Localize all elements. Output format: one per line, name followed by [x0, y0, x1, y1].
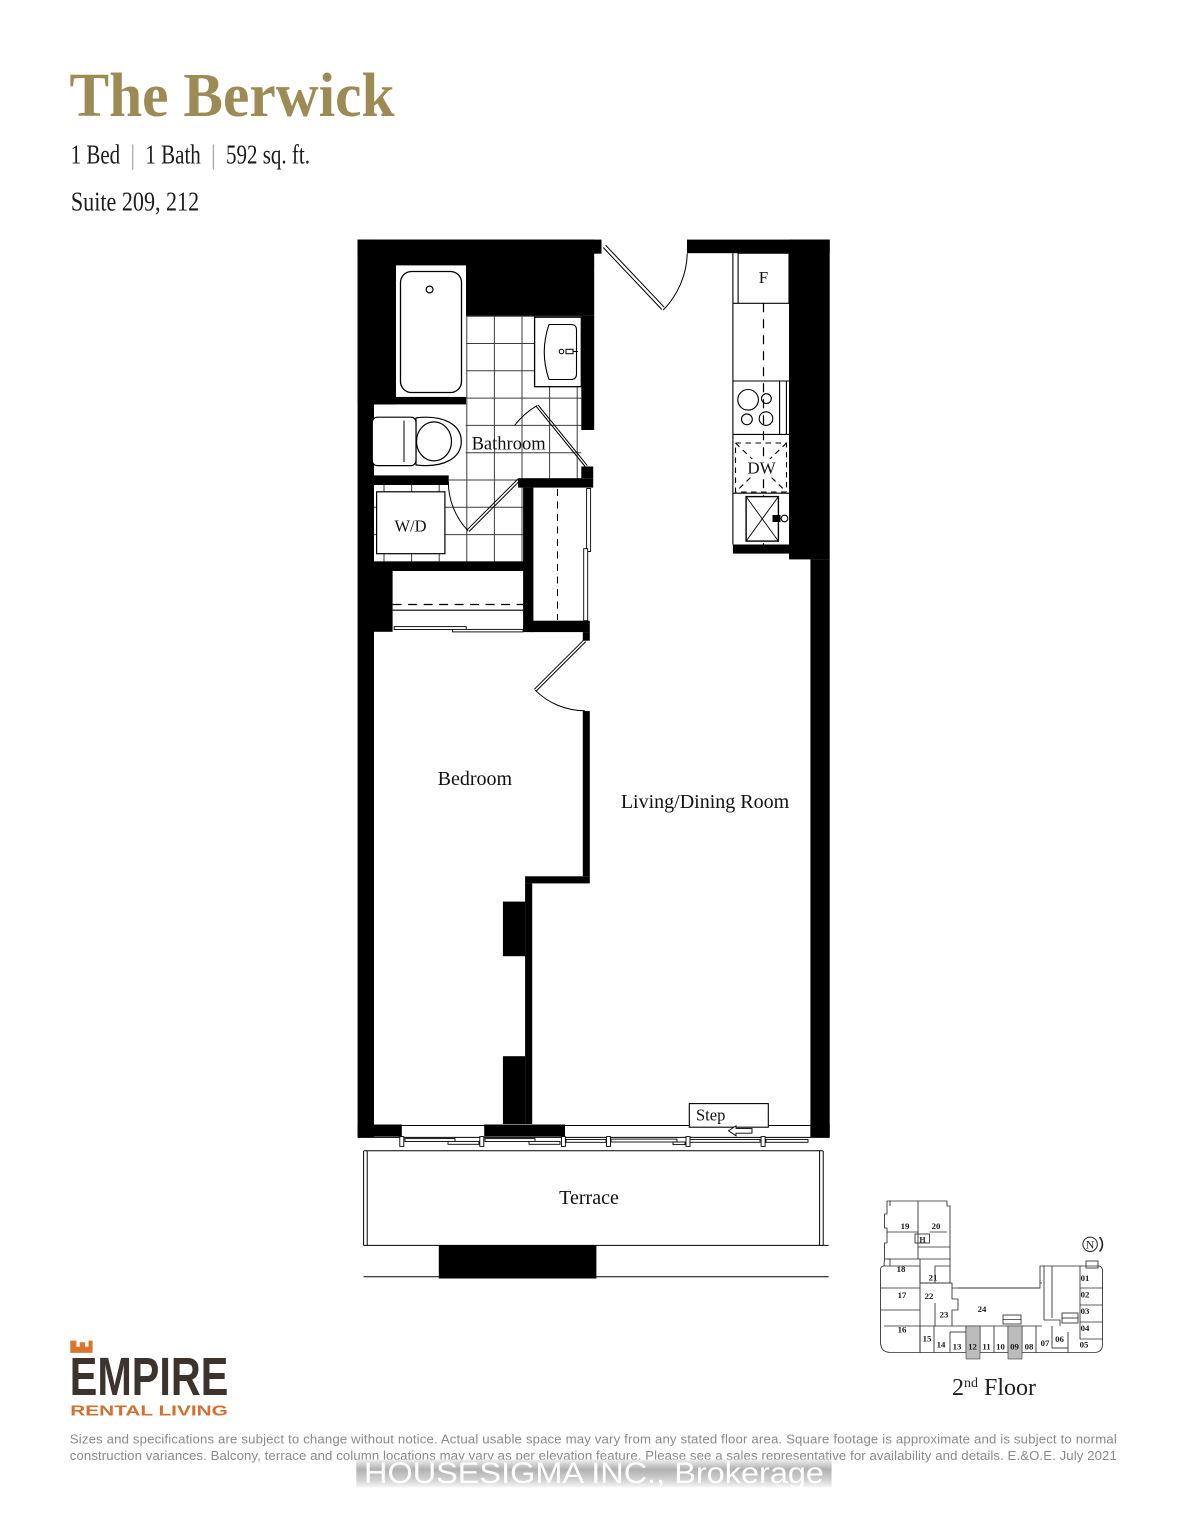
svg-text:15: 15: [923, 1334, 932, 1344]
svg-text:05: 05: [1080, 1340, 1089, 1350]
svg-text:W/D: W/D: [394, 517, 426, 536]
svg-text:23: 23: [940, 1310, 949, 1320]
svg-text:16: 16: [898, 1325, 907, 1335]
svg-text:17: 17: [898, 1290, 907, 1300]
svg-text:Sizes and specifications are s: Sizes and specifications are subject to …: [70, 1432, 1117, 1447]
svg-text:EMPIRE: EMPIRE: [70, 1347, 229, 1407]
svg-text:10: 10: [996, 1342, 1005, 1352]
svg-text:RENTAL LIVING: RENTAL LIVING: [70, 1404, 228, 1420]
svg-text:19: 19: [901, 1221, 910, 1231]
svg-text:Step: Step: [696, 1106, 725, 1125]
svg-text:09: 09: [1010, 1342, 1019, 1352]
svg-text:11: 11: [982, 1342, 990, 1352]
svg-text:14: 14: [937, 1340, 946, 1350]
svg-text:Terrace: Terrace: [559, 1187, 619, 1209]
svg-text:03: 03: [1081, 1306, 1090, 1316]
svg-text:N: N: [1086, 1238, 1095, 1252]
svg-text:20: 20: [932, 1221, 941, 1231]
svg-text:DW: DW: [747, 459, 776, 478]
svg-text:06: 06: [1055, 1334, 1064, 1344]
svg-text:F: F: [759, 268, 768, 287]
svg-text:02: 02: [1081, 1290, 1090, 1300]
svg-text:24: 24: [978, 1304, 987, 1314]
svg-text:H: H: [919, 1236, 926, 1245]
svg-text:22: 22: [925, 1291, 934, 1301]
svg-text:1 Bed | 1 Bath | 592 sq. f: 1 Bed | 1 Bath | 592 sq. ft.: [71, 139, 310, 169]
svg-text:08: 08: [1025, 1342, 1034, 1352]
svg-text:04: 04: [1081, 1323, 1090, 1333]
svg-text:18: 18: [897, 1264, 906, 1274]
svg-text:Bedroom: Bedroom: [438, 768, 513, 790]
svg-text:12: 12: [968, 1342, 977, 1352]
svg-text:21: 21: [929, 1273, 938, 1283]
svg-text:01: 01: [1081, 1273, 1090, 1283]
svg-text:13: 13: [953, 1342, 962, 1352]
svg-text:HOUSESIGMA INC., Brokerage: HOUSESIGMA INC., Brokerage: [364, 1457, 824, 1490]
svg-text:07: 07: [1041, 1338, 1050, 1348]
svg-text:Suite 209, 212: Suite 209, 212: [71, 187, 199, 217]
svg-text:Living/Dining Room: Living/Dining Room: [621, 791, 790, 813]
svg-text:Bathroom: Bathroom: [472, 435, 547, 455]
svg-text:The Berwick: The Berwick: [70, 62, 395, 130]
